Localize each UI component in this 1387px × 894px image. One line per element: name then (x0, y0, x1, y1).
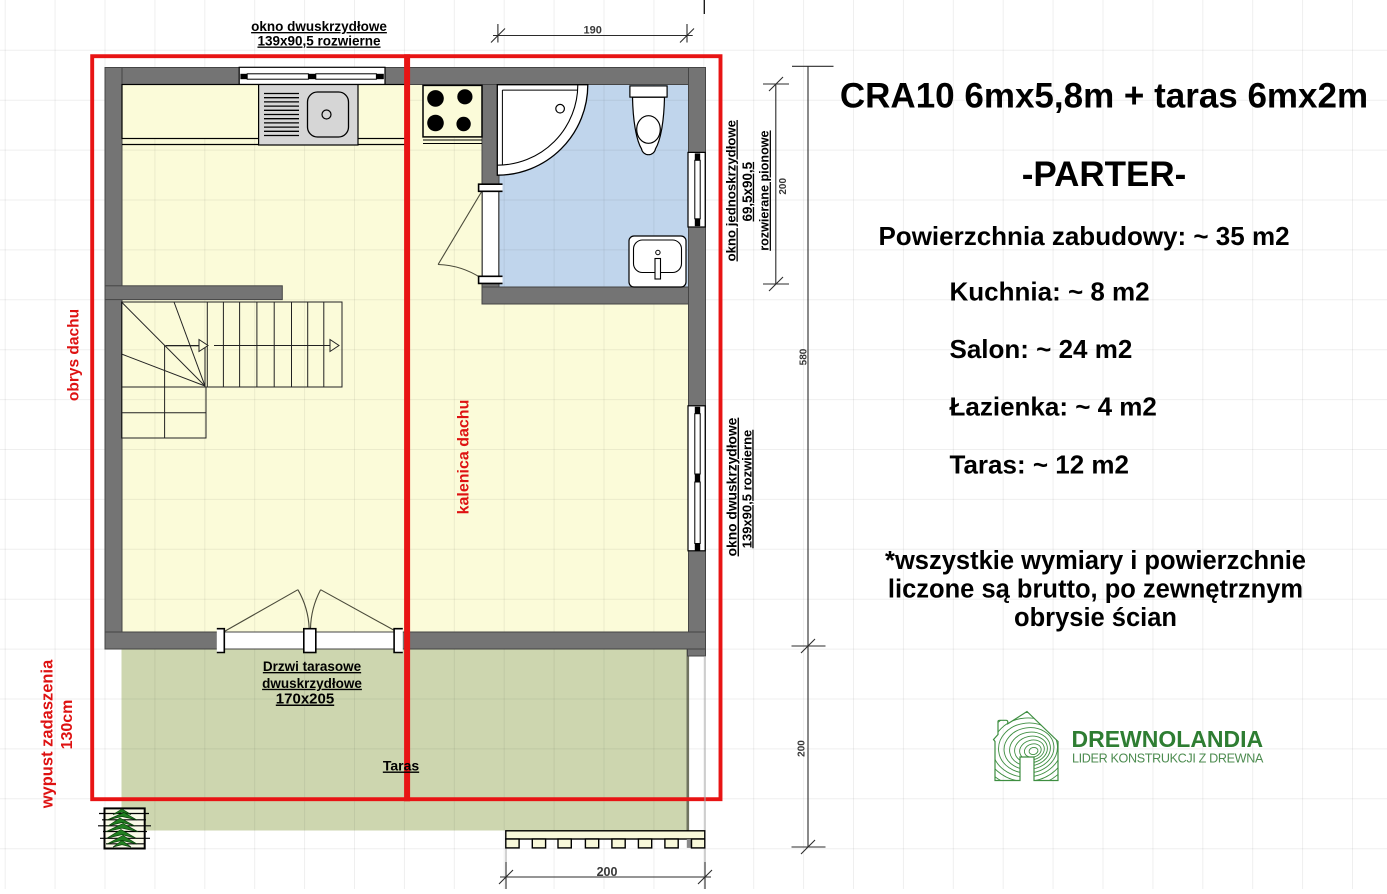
svg-text:okno dwuskrzydłowe: okno dwuskrzydłowe (251, 19, 387, 34)
svg-text:dwuskrzydłowe: dwuskrzydłowe (262, 676, 362, 691)
svg-text:kalenica dachu: kalenica dachu (456, 400, 473, 515)
svg-text:Łazienka: ~ 4 m2: Łazienka: ~ 4 m2 (950, 392, 1157, 422)
svg-text:Powierzchnia zabudowy: ~ 35 m2: Powierzchnia zabudowy: ~ 35 m2 (878, 221, 1289, 251)
svg-text:rozwierane pionowe: rozwierane pionowe (758, 130, 772, 250)
svg-text:liczone są brutto, po zewnętrz: liczone są brutto, po zewnętrznym (888, 576, 1303, 604)
svg-text:170x205: 170x205 (276, 691, 334, 708)
svg-text:200: 200 (597, 865, 618, 879)
svg-text:wypust zadaszenia: wypust zadaszenia (39, 659, 57, 809)
svg-text:obrysie ścian: obrysie ścian (1014, 604, 1177, 632)
svg-text:Kuchnia: ~ 8 m2: Kuchnia: ~ 8 m2 (950, 277, 1150, 307)
svg-text:DREWNOLANDIA: DREWNOLANDIA (1072, 726, 1264, 752)
svg-text:-PARTER-: -PARTER- (1022, 155, 1187, 194)
svg-text:580: 580 (798, 348, 809, 365)
svg-text:Salon: ~ 24 m2: Salon: ~ 24 m2 (950, 334, 1133, 364)
svg-text:69,5x90,5: 69,5x90,5 (740, 161, 755, 221)
svg-text:CRA10 6mx5,8m + taras 6mx2m: CRA10 6mx5,8m + taras 6mx2m (840, 77, 1368, 116)
svg-text:LIDER KONSTRUKCJI Z DREWNA: LIDER KONSTRUKCJI Z DREWNA (1072, 752, 1264, 766)
svg-text:200: 200 (778, 178, 789, 195)
svg-text:200: 200 (796, 740, 807, 757)
svg-text:Drzwi tarasowe: Drzwi tarasowe (263, 659, 362, 674)
svg-text:okno jednoskrzydłowe: okno jednoskrzydłowe (724, 120, 739, 261)
svg-text:139x90,5 rozwierne: 139x90,5 rozwierne (257, 34, 381, 49)
svg-text:okno dwuskrzydłowe: okno dwuskrzydłowe (725, 417, 740, 556)
svg-text:Taras: ~ 12 m2: Taras: ~ 12 m2 (950, 450, 1129, 480)
svg-text:Taras: Taras (383, 758, 420, 774)
svg-text:130cm: 130cm (59, 700, 76, 750)
svg-text:*wszystkie wymiary i powierzch: *wszystkie wymiary i powierzchnie (885, 547, 1306, 575)
svg-text:139x90,5 rozwierne: 139x90,5 rozwierne (739, 430, 754, 549)
svg-text:190: 190 (584, 25, 602, 37)
svg-text:obrys dachu: obrys dachu (66, 309, 83, 401)
